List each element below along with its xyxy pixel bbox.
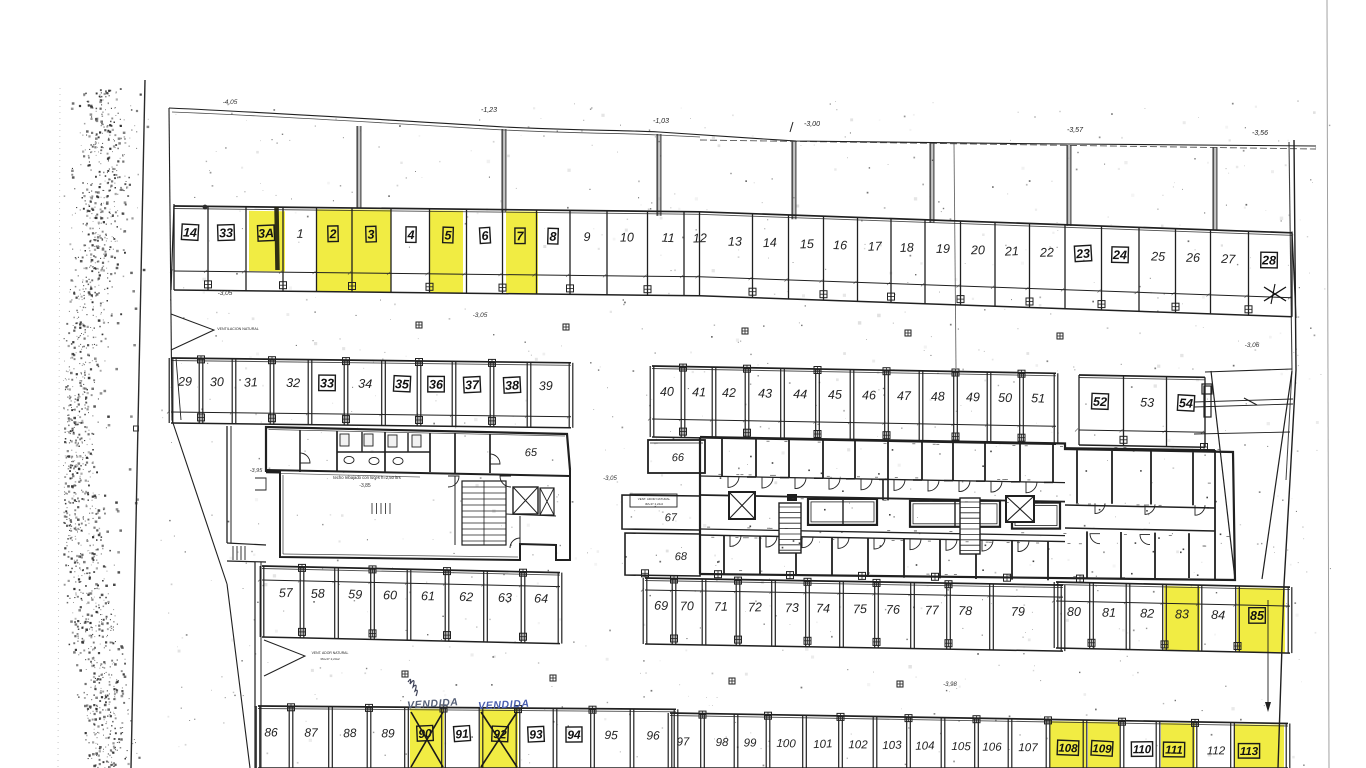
svg-text:97: 97	[676, 736, 690, 748]
svg-text:89: 89	[381, 726, 395, 740]
svg-text:99: 99	[744, 737, 757, 749]
svg-text:30: 30	[210, 375, 224, 389]
svg-text:47: 47	[897, 389, 912, 403]
svg-text:3M+3Y 2,24x2: 3M+3Y 2,24x2	[645, 502, 664, 506]
svg-text:44: 44	[793, 387, 808, 402]
svg-text:70: 70	[680, 599, 694, 613]
svg-text:8: 8	[549, 230, 556, 244]
svg-text:20: 20	[970, 243, 985, 257]
svg-text:15: 15	[800, 237, 814, 251]
svg-text:104: 104	[915, 740, 934, 752]
svg-text:88: 88	[343, 726, 357, 741]
svg-text:VENT. ADOR NATURAL: VENT. ADOR NATURAL	[312, 651, 349, 655]
svg-text:73: 73	[785, 601, 799, 615]
svg-text:19: 19	[936, 242, 950, 256]
svg-text:23: 23	[1075, 246, 1091, 261]
svg-text:4: 4	[406, 228, 414, 242]
svg-text:69: 69	[654, 599, 668, 613]
svg-text:27: 27	[1220, 252, 1237, 267]
svg-text:79: 79	[1011, 605, 1025, 619]
svg-text:74: 74	[816, 601, 830, 615]
svg-text:93: 93	[529, 727, 543, 742]
svg-text:26: 26	[1185, 251, 1200, 265]
svg-text:24: 24	[1112, 248, 1127, 262]
svg-text:-3,00: -3,00	[804, 121, 820, 128]
svg-text:-4,05: -4,05	[223, 99, 238, 106]
svg-text:110: 110	[1133, 744, 1152, 756]
svg-text:7: 7	[517, 229, 525, 243]
svg-text:33: 33	[219, 226, 233, 240]
svg-text:VENTILACION NATURAL: VENTILACION NATURAL	[217, 327, 258, 331]
svg-text:-3,05: -3,05	[473, 312, 488, 319]
svg-text:-3,05: -3,05	[218, 290, 233, 297]
svg-text:49: 49	[966, 390, 980, 404]
svg-text:17: 17	[868, 239, 883, 254]
svg-text:60: 60	[383, 588, 397, 602]
svg-text:77: 77	[925, 603, 940, 618]
svg-text:3: 3	[367, 228, 374, 242]
svg-text:32: 32	[286, 376, 300, 390]
svg-text:42: 42	[722, 386, 736, 400]
svg-text:98: 98	[716, 737, 729, 749]
svg-text:9: 9	[583, 230, 590, 244]
svg-text:1: 1	[296, 227, 303, 241]
svg-text:103: 103	[882, 740, 902, 753]
svg-text:50: 50	[998, 391, 1012, 405]
svg-text:13: 13	[728, 234, 742, 248]
svg-text:28: 28	[1261, 253, 1276, 267]
svg-text:43: 43	[758, 386, 772, 400]
svg-text:-1,23: -1,23	[481, 107, 497, 114]
svg-text:95: 95	[604, 728, 618, 742]
svg-text:112: 112	[1207, 745, 1226, 757]
svg-text:-1,03: -1,03	[653, 118, 669, 125]
svg-text:81: 81	[1102, 606, 1116, 620]
svg-text:111: 111	[1165, 745, 1183, 757]
svg-text:100: 100	[776, 738, 796, 751]
svg-text:82: 82	[1140, 606, 1155, 621]
svg-text:63: 63	[498, 591, 512, 605]
svg-text:52: 52	[1093, 395, 1107, 410]
svg-text:54: 54	[1179, 396, 1194, 411]
svg-text:29: 29	[177, 375, 192, 389]
svg-text:16: 16	[833, 238, 848, 253]
svg-text:31: 31	[244, 375, 258, 390]
svg-text:84: 84	[1211, 608, 1226, 623]
svg-text:46: 46	[862, 388, 876, 402]
svg-text:107: 107	[1018, 742, 1038, 754]
svg-text:techo rebajado con luces h=2,5: techo rebajado con luces h=2,50 ltrs	[333, 475, 400, 480]
svg-text:-3,05: -3,05	[603, 476, 617, 482]
svg-text:3M+3Y 2,24x2: 3M+3Y 2,24x2	[320, 657, 340, 661]
svg-text:65: 65	[525, 447, 539, 459]
svg-text:83: 83	[1175, 607, 1189, 621]
svg-text:10: 10	[620, 230, 634, 244]
svg-text:68: 68	[675, 551, 689, 563]
svg-text:3A: 3A	[258, 226, 275, 241]
svg-text:80: 80	[1067, 605, 1081, 619]
svg-text:-3,06: -3,06	[1245, 342, 1260, 349]
svg-text:102: 102	[848, 739, 868, 751]
svg-text:75: 75	[853, 602, 867, 616]
svg-text:76: 76	[886, 603, 900, 617]
svg-text:-3,95: -3,95	[250, 468, 263, 474]
svg-text:94: 94	[567, 728, 581, 742]
svg-text:91: 91	[455, 727, 470, 742]
svg-text:21: 21	[1004, 244, 1019, 258]
svg-text:96: 96	[646, 728, 660, 742]
svg-text:108: 108	[1058, 743, 1078, 756]
svg-text:72: 72	[748, 600, 762, 614]
svg-text:59: 59	[348, 587, 363, 602]
svg-text:58: 58	[310, 586, 325, 601]
svg-text:-3,56: -3,56	[1252, 130, 1268, 137]
svg-text:18: 18	[899, 240, 914, 255]
svg-text:64: 64	[534, 591, 548, 606]
svg-text:36: 36	[429, 378, 444, 392]
svg-text:-3,85: -3,85	[359, 483, 371, 489]
svg-text:-3,57: -3,57	[1067, 127, 1084, 134]
svg-text:85: 85	[1250, 609, 1265, 623]
svg-text:34: 34	[358, 376, 373, 391]
svg-text:86: 86	[264, 725, 278, 739]
svg-text:VENT. ADOR NATURAL: VENT. ADOR NATURAL	[638, 497, 671, 501]
svg-text:66: 66	[672, 452, 686, 464]
svg-text:67: 67	[665, 512, 679, 524]
svg-text:38: 38	[505, 378, 520, 393]
svg-text:14: 14	[763, 235, 778, 250]
svg-text:48: 48	[930, 389, 945, 404]
svg-text:71: 71	[714, 600, 728, 614]
svg-text:78: 78	[958, 604, 973, 619]
svg-text:57: 57	[279, 586, 294, 601]
svg-text:25: 25	[1150, 249, 1165, 264]
svg-text:61: 61	[421, 589, 435, 603]
svg-text:33: 33	[320, 376, 334, 390]
svg-text:40: 40	[660, 385, 674, 399]
svg-text:106: 106	[982, 742, 1002, 754]
svg-text:35: 35	[395, 377, 411, 392]
svg-text:105: 105	[951, 741, 971, 754]
svg-text:11: 11	[661, 231, 675, 246]
svg-text:-3,98: -3,98	[943, 682, 957, 688]
svg-text:87: 87	[304, 726, 319, 740]
svg-text:14: 14	[183, 225, 198, 240]
svg-text:51: 51	[1031, 391, 1045, 406]
svg-text:45: 45	[828, 388, 842, 402]
svg-text:101: 101	[813, 738, 833, 751]
svg-text:41: 41	[692, 385, 706, 399]
svg-text:37: 37	[465, 378, 481, 393]
svg-text:22: 22	[1039, 245, 1054, 259]
svg-text:109: 109	[1092, 743, 1112, 756]
svg-text:39: 39	[539, 379, 554, 394]
svg-text:113: 113	[1240, 746, 1259, 758]
svg-text:2: 2	[328, 227, 336, 241]
svg-text:53: 53	[1140, 395, 1154, 410]
svg-text:62: 62	[459, 590, 474, 605]
